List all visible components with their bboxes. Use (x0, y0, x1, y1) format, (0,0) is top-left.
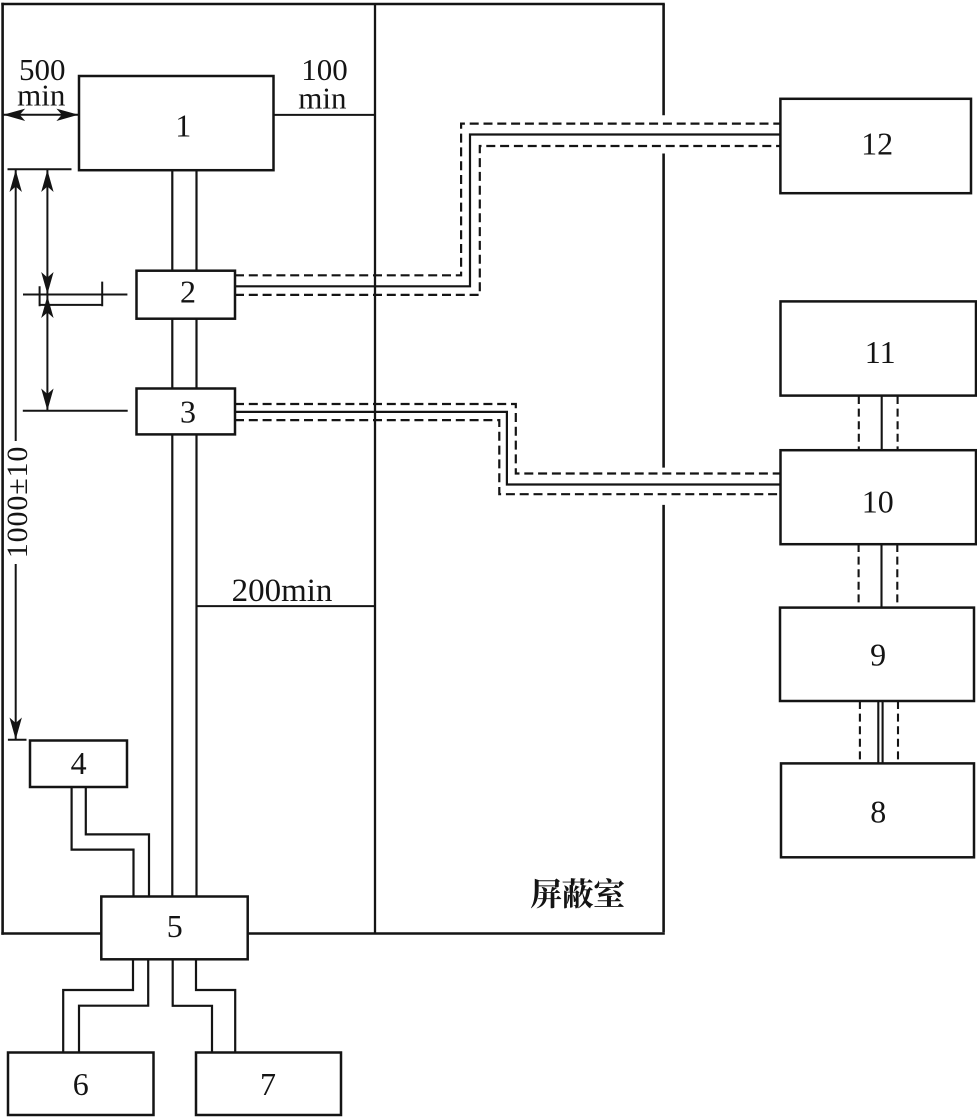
svg-text:1: 1 (175, 107, 191, 143)
svg-text:8: 8 (870, 793, 886, 829)
svg-text:200min: 200min (232, 573, 333, 609)
svg-text:11: 11 (865, 334, 896, 370)
svg-text:2: 2 (180, 274, 196, 310)
svg-text:9: 9 (870, 637, 886, 673)
svg-text:5: 5 (167, 908, 183, 944)
svg-text:min: min (17, 78, 66, 113)
svg-text:6: 6 (73, 1066, 89, 1102)
svg-text:min: min (298, 81, 347, 116)
svg-text:4: 4 (71, 745, 87, 781)
svg-text:12: 12 (861, 125, 893, 161)
svg-text:3: 3 (180, 393, 196, 429)
svg-text:7: 7 (260, 1066, 276, 1102)
svg-text:1000±10: 1000±10 (1, 446, 34, 558)
svg-text:10: 10 (862, 484, 894, 520)
